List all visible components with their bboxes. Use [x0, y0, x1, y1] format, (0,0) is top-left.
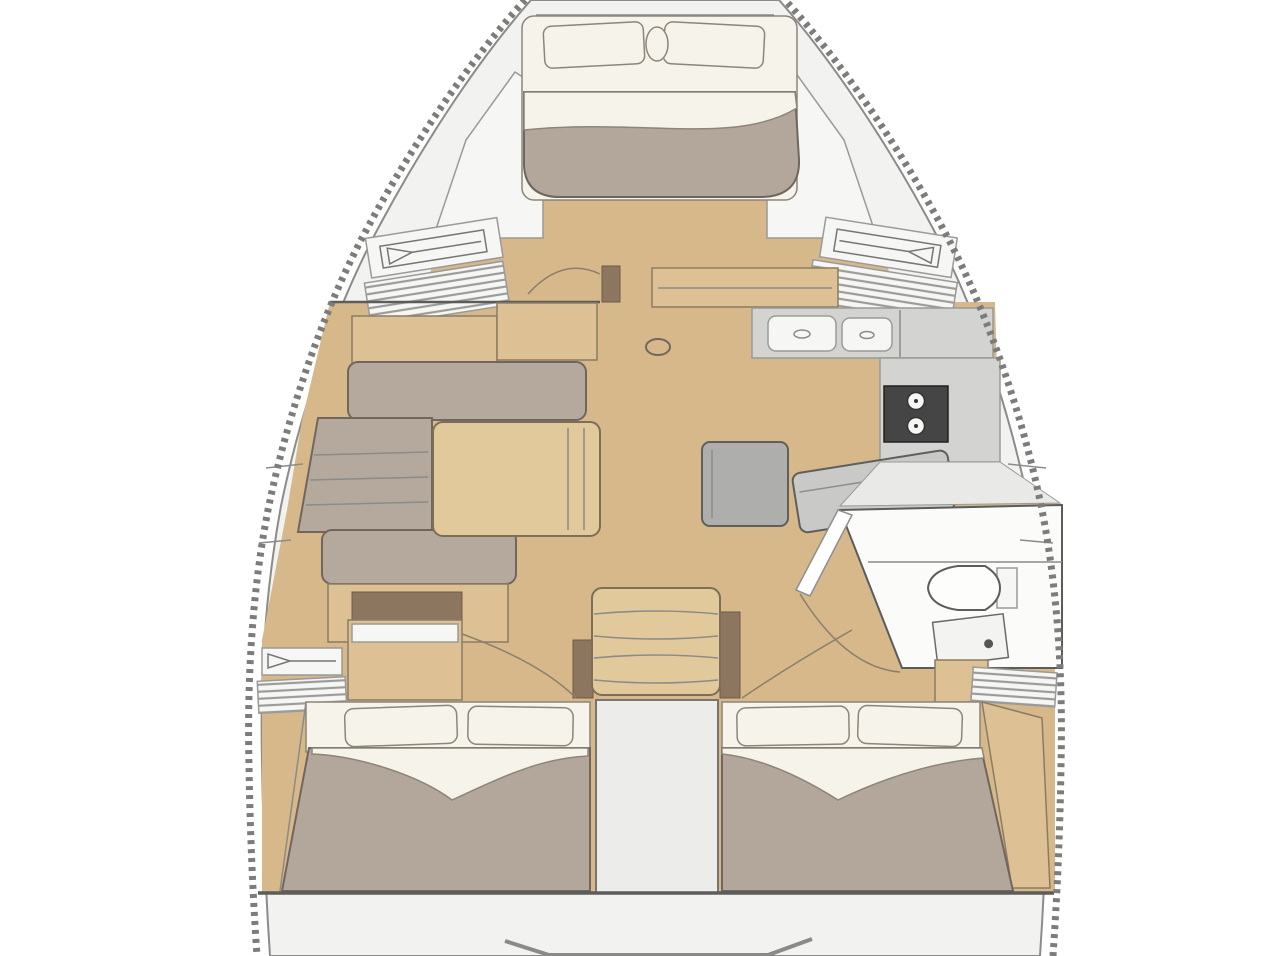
- v-berth-sheet-fold: [524, 92, 797, 130]
- pillow: [737, 706, 850, 746]
- aft-cabinet-shelf: [352, 624, 458, 642]
- engine-compartment: [596, 700, 718, 893]
- pillow: [468, 706, 574, 746]
- step-rail-port: [573, 640, 593, 698]
- galley-sink-unit: [752, 308, 993, 358]
- settee-back-cushion: [348, 362, 586, 420]
- step-rail-starboard: [720, 612, 740, 698]
- pillow: [344, 705, 457, 747]
- shower-tray: [933, 614, 1009, 666]
- table-top: [433, 422, 600, 536]
- aft-double-bed-port: [280, 702, 590, 891]
- louvered-vent-slats: [971, 667, 1057, 707]
- pillow-gap-cushion: [646, 27, 668, 61]
- ottoman-seat: [702, 442, 788, 526]
- pillow: [543, 21, 645, 68]
- mast-step: [646, 339, 670, 355]
- v-berth-double-bed: [522, 16, 799, 200]
- pillow: [663, 21, 765, 68]
- settee-side-cushion: [298, 418, 432, 532]
- yacht-floor-plan: [0, 0, 1280, 956]
- sink-basin-small: [842, 318, 892, 351]
- toilet: [928, 566, 1017, 610]
- burner-center: [914, 424, 918, 428]
- burner-center: [914, 399, 918, 403]
- settee-bottom-cushion: [322, 530, 516, 584]
- aft-double-bed-starboard: [722, 702, 1013, 891]
- port-sideboard-cabinet: [352, 316, 497, 368]
- saloon-table: [433, 422, 600, 536]
- companionway-steps: [573, 588, 740, 698]
- pillow: [857, 705, 962, 747]
- louvered-locker-starboard-aft: [971, 667, 1057, 707]
- toilet-bowl: [928, 566, 1000, 610]
- forward-cabin-door: [602, 266, 620, 302]
- two-burner-stove: [884, 386, 948, 442]
- floor-plan-canvas: [0, 0, 1280, 956]
- steps-block: [592, 588, 720, 695]
- shower-pan: [933, 614, 1009, 666]
- sink-basin-large: [768, 316, 836, 351]
- port-sideboard-cabinet-2: [497, 303, 597, 360]
